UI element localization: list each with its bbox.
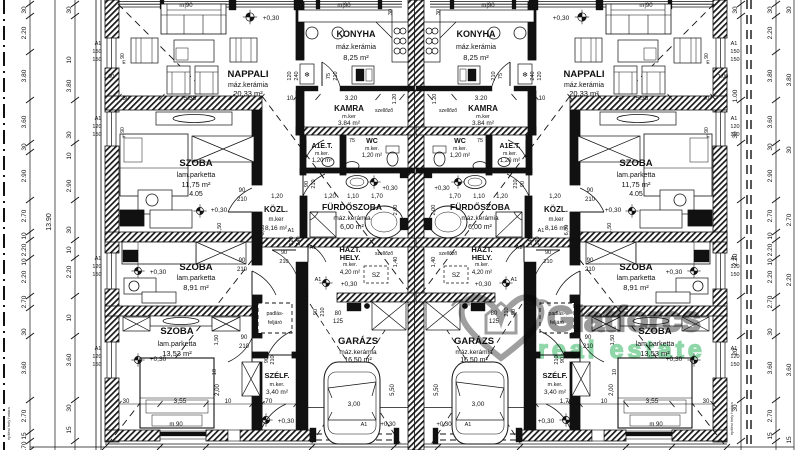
svg-text:1,20 m²: 1,20 m²	[450, 153, 470, 159]
svg-text:90: 90	[241, 335, 248, 341]
svg-text:lam.parketta: lam.parketta	[177, 172, 216, 179]
svg-text:30: 30	[436, 9, 442, 15]
svg-text:90: 90	[545, 250, 551, 256]
svg-text:3,00: 3,00	[348, 401, 361, 408]
svg-text:szellőző: szellőző	[439, 251, 457, 257]
svg-text:210: 210	[270, 355, 276, 364]
svg-text:90: 90	[120, 127, 126, 133]
svg-text:1,10: 1,10	[347, 194, 359, 200]
svg-text:m.ker.: m.ker.	[315, 151, 329, 157]
svg-text:+0,30: +0,30	[380, 422, 396, 428]
svg-text:WC: WC	[454, 138, 466, 145]
svg-text:5.35: 5.35	[636, 95, 649, 102]
svg-text:120: 120	[92, 124, 101, 130]
svg-text:2,00: 2,00	[393, 205, 399, 216]
svg-text:+0,30: +0,30	[150, 269, 167, 276]
svg-text:real estate: real estate	[538, 336, 706, 364]
svg-text:szellőző: szellőző	[375, 108, 393, 114]
svg-text:75: 75	[349, 138, 355, 144]
svg-text:1,20: 1,20	[496, 194, 508, 200]
svg-text:NAPPALI: NAPPALI	[564, 69, 605, 80]
svg-text:120: 120	[289, 236, 295, 245]
svg-text:120: 120	[730, 124, 739, 130]
svg-text:120: 120	[535, 236, 541, 245]
svg-text:30: 30	[767, 143, 774, 151]
svg-text:1,40: 1,40	[431, 257, 437, 268]
svg-text:SZOBA: SZOBA	[619, 158, 652, 169]
svg-text:120: 120	[92, 354, 101, 360]
svg-text:2.20: 2.20	[66, 265, 73, 278]
svg-text:m|90: m|90	[179, 3, 193, 9]
svg-text:3.60: 3.60	[66, 353, 73, 366]
svg-text:1,20 m²: 1,20 m²	[500, 158, 520, 164]
svg-text:10: 10	[287, 96, 294, 102]
svg-text:1,40: 1,40	[393, 257, 399, 268]
svg-text:2.70: 2.70	[21, 409, 28, 422]
svg-text:A1: A1	[310, 245, 317, 251]
svg-text:210: 210	[585, 267, 596, 273]
svg-text:+0,30: +0,30	[341, 281, 358, 288]
svg-text:120: 120	[92, 264, 101, 270]
svg-text:1.00: 1.00	[732, 89, 739, 102]
svg-text:SZOBA: SZOBA	[160, 326, 193, 337]
svg-text:A1: A1	[538, 228, 545, 234]
svg-text:máz.kerámia: máz.kerámia	[461, 215, 499, 222]
svg-text:1,20: 1,20	[271, 194, 283, 200]
svg-text:2.20: 2.20	[767, 270, 774, 283]
svg-text:m 90: m 90	[649, 422, 663, 428]
svg-text:240: 240	[294, 71, 300, 80]
svg-text:2.90: 2.90	[66, 179, 73, 192]
svg-text:A1: A1	[288, 228, 295, 234]
svg-text:2,00: 2,00	[431, 205, 437, 216]
svg-text:2.90: 2.90	[767, 169, 774, 182]
svg-text:80: 80	[335, 311, 342, 317]
svg-text:m|90: m|90	[337, 3, 351, 9]
svg-text:30: 30	[21, 143, 28, 151]
svg-text:11,75 m²: 11,75 m²	[181, 180, 211, 189]
svg-text:10: 10	[612, 369, 618, 375]
svg-text:2.20: 2.20	[21, 243, 28, 256]
svg-text:90: 90	[239, 258, 246, 264]
svg-text:1,70: 1,70	[371, 194, 383, 200]
svg-text:150: 150	[730, 49, 739, 55]
svg-text:KONYHA: KONYHA	[456, 29, 496, 39]
svg-text:1.20: 1.20	[432, 94, 438, 105]
svg-text:3.60: 3.60	[767, 115, 774, 128]
svg-text:2,00: 2,00	[215, 384, 221, 396]
svg-text:210: 210	[333, 71, 339, 80]
svg-text:90: 90	[304, 181, 310, 187]
svg-text:A1: A1	[95, 41, 102, 47]
svg-text:lam.parketta: lam.parketta	[617, 172, 656, 179]
svg-text:90: 90	[704, 53, 710, 59]
svg-text:m 90: m 90	[169, 422, 183, 428]
svg-text:1,20: 1,20	[324, 194, 336, 200]
svg-text:máz.kerámia: máz.kerámia	[339, 349, 377, 356]
svg-text:KÖZL.: KÖZL.	[264, 205, 288, 214]
svg-text:lam.parketta: lam.parketta	[177, 275, 216, 282]
svg-text:KÖZL.: KÖZL.	[544, 205, 568, 214]
svg-text:SZÉLF.: SZÉLF.	[542, 371, 567, 380]
svg-text:Glatforcs: Glatforcs	[547, 300, 701, 339]
svg-text:GARÁZS: GARÁZS	[338, 336, 378, 347]
svg-text:+0,30: +0,30	[434, 186, 450, 192]
svg-text:30: 30	[66, 6, 73, 14]
svg-text:10: 10	[21, 258, 28, 266]
svg-text:SZOBA: SZOBA	[619, 262, 652, 273]
svg-text:240: 240	[296, 236, 302, 245]
svg-text:A1: A1	[95, 256, 102, 262]
svg-text:3.84 m²: 3.84 m²	[338, 120, 361, 127]
svg-text:210: 210	[311, 179, 317, 188]
svg-text:3.84 m²: 3.84 m²	[472, 120, 495, 127]
svg-text:2,00: 2,00	[609, 384, 615, 396]
svg-text:FÜRDŐSZOBA: FÜRDŐSZOBA	[450, 201, 510, 212]
svg-text:3.80: 3.80	[767, 69, 774, 82]
svg-text:10: 10	[212, 369, 218, 375]
svg-text:3,40 m²: 3,40 m²	[544, 389, 567, 396]
svg-text:15: 15	[786, 436, 793, 444]
svg-text:5,50: 5,50	[434, 384, 440, 396]
svg-text:75: 75	[477, 138, 483, 144]
svg-text:A1: A1	[731, 346, 738, 352]
svg-text:30: 30	[123, 96, 130, 102]
svg-text:8,91 m²: 8,91 m²	[183, 283, 209, 292]
svg-text:2.70: 2.70	[21, 209, 28, 222]
svg-text:lam.parketta: lam.parketta	[617, 275, 656, 282]
svg-text:90: 90	[120, 53, 126, 59]
svg-text:m.ker.: m.ker.	[365, 146, 379, 152]
svg-text:10: 10	[66, 56, 73, 64]
svg-text:75: 75	[326, 73, 332, 79]
svg-text:2.20: 2.20	[21, 270, 28, 283]
svg-text:10: 10	[66, 314, 73, 322]
svg-text:30: 30	[21, 328, 28, 336]
svg-text:+0,30: +0,30	[211, 207, 228, 214]
svg-text:1,20: 1,20	[549, 194, 561, 200]
svg-text:2.20: 2.20	[786, 273, 793, 286]
svg-text:+0,30: +0,30	[475, 281, 492, 288]
svg-text:210: 210	[513, 179, 519, 188]
svg-text:A1: A1	[315, 277, 322, 283]
svg-text:90: 90	[313, 309, 319, 315]
svg-text:m|90: m|90	[639, 3, 653, 9]
svg-text:30: 30	[786, 146, 793, 154]
svg-text:szellőző: szellőző	[375, 251, 393, 257]
svg-text:210: 210	[320, 307, 326, 316]
svg-text:15: 15	[21, 432, 28, 440]
svg-text:m.ker.: m.ker.	[548, 382, 563, 388]
svg-text:30: 30	[66, 404, 73, 412]
svg-text:A1: A1	[511, 277, 518, 283]
svg-text:3.80: 3.80	[786, 73, 793, 86]
svg-text:KAMRA: KAMRA	[468, 104, 498, 113]
svg-text:8,91 m²: 8,91 m²	[623, 283, 649, 292]
svg-text:30: 30	[388, 9, 394, 15]
svg-text:10: 10	[767, 258, 774, 266]
svg-text:NAPPALI: NAPPALI	[228, 69, 269, 80]
svg-text:1.00: 1.00	[104, 74, 115, 80]
svg-text:15: 15	[767, 432, 774, 440]
svg-text:m.ker.: m.ker.	[270, 382, 285, 388]
svg-text:3.80: 3.80	[66, 79, 73, 92]
svg-text:2.70: 2.70	[767, 209, 774, 222]
svg-text:1,10: 1,10	[473, 194, 485, 200]
svg-text:90: 90	[587, 258, 594, 264]
svg-text:150: 150	[730, 57, 739, 63]
svg-text:90: 90	[704, 127, 710, 133]
svg-text:10: 10	[767, 232, 774, 240]
svg-text:13,53 m²: 13,53 m²	[162, 349, 192, 358]
svg-text:125: 125	[333, 319, 344, 325]
svg-text:KAMRA: KAMRA	[334, 104, 364, 113]
svg-text:90: 90	[520, 181, 526, 187]
svg-text:16,50 m²: 16,50 m²	[460, 357, 488, 364]
svg-text:1,50: 1,50	[217, 223, 223, 234]
svg-text:150: 150	[730, 132, 739, 138]
svg-text:210: 210	[543, 259, 552, 265]
svg-text:+0,30: +0,30	[278, 418, 295, 425]
svg-text:A1: A1	[516, 245, 523, 251]
svg-text:150: 150	[92, 272, 101, 278]
svg-text:4,20 m²: 4,20 m²	[340, 270, 360, 276]
svg-text:A1E.T.: A1E.T.	[499, 143, 520, 150]
svg-text:150: 150	[92, 132, 101, 138]
svg-text:WC: WC	[366, 138, 378, 145]
svg-text:2.20: 2.20	[767, 26, 774, 39]
svg-text:20,33 m²: 20,33 m²	[569, 89, 599, 98]
svg-text:❄: ❄	[304, 71, 310, 79]
svg-text:210: 210	[237, 267, 248, 273]
svg-text:16,50 m²: 16,50 m²	[344, 357, 372, 364]
svg-text:SZ: SZ	[452, 272, 460, 279]
svg-text:SZÉLF.: SZÉLF.	[264, 371, 289, 380]
svg-text:6,00 m²: 6,00 m²	[468, 224, 492, 231]
svg-text:1.20: 1.20	[392, 94, 398, 105]
svg-text:150: 150	[730, 272, 739, 278]
svg-text:máz.kerámia: máz.kerámia	[456, 44, 496, 51]
svg-text:m.ker.: m.ker.	[475, 262, 489, 268]
svg-text:A1: A1	[361, 422, 368, 428]
svg-text:A1: A1	[95, 116, 102, 122]
svg-text:3.60: 3.60	[786, 363, 793, 376]
svg-text:11,75 m²: 11,75 m²	[621, 180, 651, 189]
svg-text:1,20 m²: 1,20 m²	[362, 153, 382, 159]
svg-text:+0,30: +0,30	[263, 15, 280, 22]
svg-text:150: 150	[92, 362, 101, 368]
svg-text:30: 30	[66, 131, 73, 139]
svg-text:2.20: 2.20	[767, 243, 774, 256]
svg-text:10: 10	[21, 232, 28, 240]
svg-text:építési hely határa: építési hely határa	[6, 407, 11, 440]
svg-text:3.60: 3.60	[21, 361, 28, 374]
svg-text:KONYHA: KONYHA	[336, 29, 376, 39]
svg-text:30: 30	[703, 96, 710, 102]
svg-text:m.ker.: m.ker.	[503, 151, 517, 157]
svg-text:240: 240	[528, 236, 534, 245]
svg-text:10: 10	[66, 246, 73, 254]
svg-text:A1: A1	[731, 41, 738, 47]
svg-text:90: 90	[587, 188, 594, 194]
svg-text:máz.kerámia: máz.kerámia	[228, 82, 268, 89]
svg-text:3.20: 3.20	[475, 95, 488, 102]
svg-text:máz.kerámia: máz.kerámia	[333, 215, 371, 222]
svg-text:6,00 m²: 6,00 m²	[340, 224, 364, 231]
svg-text:1,50: 1,50	[607, 223, 613, 234]
svg-text:A1: A1	[465, 422, 472, 428]
svg-text:3,00: 3,00	[472, 401, 485, 408]
svg-text:A1: A1	[95, 346, 102, 352]
svg-text:+0,30: +0,30	[605, 207, 622, 214]
svg-text:+0,30: +0,30	[666, 269, 683, 276]
svg-text:3,40 m²: 3,40 m²	[266, 389, 289, 396]
svg-text:8,25 m²: 8,25 m²	[343, 53, 369, 62]
svg-text:125: 125	[489, 319, 500, 325]
svg-text:3.60: 3.60	[21, 115, 28, 128]
svg-text:1,50: 1,50	[214, 335, 220, 346]
svg-text:120: 120	[730, 264, 739, 270]
svg-text:+0,30: +0,30	[382, 186, 398, 192]
svg-text:+0,30: +0,30	[553, 15, 570, 22]
svg-text:15: 15	[66, 426, 73, 434]
svg-text:❄: ❄	[522, 71, 528, 79]
svg-text:30: 30	[21, 6, 28, 14]
svg-text:m.ker.: m.ker.	[343, 262, 357, 268]
svg-text:m.ker: m.ker	[269, 217, 284, 223]
svg-text:4.05: 4.05	[189, 191, 203, 198]
svg-text:210: 210	[491, 71, 497, 80]
svg-text:6,80: 6,80	[260, 225, 266, 236]
svg-text:A1E.T.: A1E.T.	[311, 143, 332, 150]
svg-text:1,70: 1,70	[449, 194, 461, 200]
svg-text:2.90: 2.90	[21, 169, 28, 182]
svg-text:2.20: 2.20	[21, 26, 28, 39]
svg-text:HELY.: HELY.	[340, 253, 361, 262]
svg-text:2.70: 2.70	[767, 295, 774, 308]
svg-text:SZOBA: SZOBA	[179, 158, 212, 169]
svg-text:2.70: 2.70	[21, 295, 28, 308]
svg-text:20,33 m²: 20,33 m²	[233, 89, 263, 98]
svg-text:SZOBA: SZOBA	[179, 262, 212, 273]
svg-text:feljáró: feljáró	[268, 320, 282, 326]
svg-text:2.70: 2.70	[786, 213, 793, 226]
svg-text:10: 10	[539, 96, 546, 102]
svg-text:A1: A1	[731, 256, 738, 262]
svg-text:máz.kerámia: máz.kerámia	[336, 44, 376, 51]
svg-text:szellőző: szellőző	[439, 108, 457, 114]
svg-text:240: 240	[530, 71, 536, 80]
svg-text:.70: .70	[21, 441, 28, 450]
svg-text:90: 90	[239, 188, 246, 194]
svg-text:120: 120	[537, 71, 543, 80]
svg-text:120: 120	[730, 354, 739, 360]
svg-text:lam.parketta: lam.parketta	[158, 341, 197, 348]
svg-text:30: 30	[732, 6, 739, 14]
svg-text:90: 90	[281, 250, 287, 256]
svg-text:+0,30: +0,30	[436, 422, 452, 428]
svg-text:150: 150	[730, 362, 739, 368]
svg-text:+0,30: +0,30	[538, 418, 555, 425]
svg-text:150: 150	[92, 57, 101, 63]
svg-text:m.ker.: m.ker.	[453, 146, 467, 152]
svg-text:3.60: 3.60	[767, 361, 774, 374]
svg-text:1,20 m²: 1,20 m²	[312, 158, 332, 164]
svg-text:6,80: 6,80	[564, 225, 570, 236]
svg-text:5,50: 5,50	[390, 384, 396, 396]
svg-text:10: 10	[66, 152, 73, 160]
svg-text:120: 120	[287, 71, 293, 80]
svg-text:13.90: 13.90	[46, 213, 53, 231]
svg-text:210: 210	[237, 197, 248, 203]
svg-text:m|90: m|90	[481, 3, 495, 9]
svg-text:5.35: 5.35	[184, 95, 197, 102]
svg-text:SZ: SZ	[372, 272, 380, 279]
svg-text:3.80: 3.80	[21, 69, 28, 82]
svg-text:HELY.: HELY.	[472, 253, 493, 262]
svg-text:1.00: 1.00	[718, 74, 729, 80]
svg-text:4,20 m²: 4,20 m²	[472, 270, 492, 276]
svg-text:210: 210	[239, 344, 250, 350]
svg-text:3.20: 3.20	[345, 95, 358, 102]
svg-text:A1: A1	[731, 116, 738, 122]
svg-text:8,16 m²: 8,16 m²	[265, 225, 288, 232]
svg-text:210: 210	[279, 259, 288, 265]
svg-text:30: 30	[786, 6, 793, 14]
svg-text:m.ker: m.ker	[549, 217, 564, 223]
svg-text:30: 30	[767, 328, 774, 336]
svg-text:2.70: 2.70	[767, 409, 774, 422]
svg-text:padlás-: padlás-	[266, 311, 283, 317]
svg-text:8,25 m²: 8,25 m²	[463, 53, 489, 62]
svg-text:150: 150	[92, 49, 101, 55]
svg-text:4.05: 4.05	[629, 191, 643, 198]
svg-text:30: 30	[767, 6, 774, 14]
svg-text:+0,30: +0,30	[150, 356, 167, 363]
svg-text:30: 30	[732, 404, 739, 412]
svg-text:FÜRDŐSZOBA: FÜRDŐSZOBA	[322, 201, 382, 212]
svg-text:210: 210	[585, 197, 596, 203]
svg-text:75: 75	[498, 73, 504, 79]
svg-text:máz.kerámia: máz.kerámia	[564, 82, 604, 89]
svg-text:30: 30	[66, 226, 73, 234]
